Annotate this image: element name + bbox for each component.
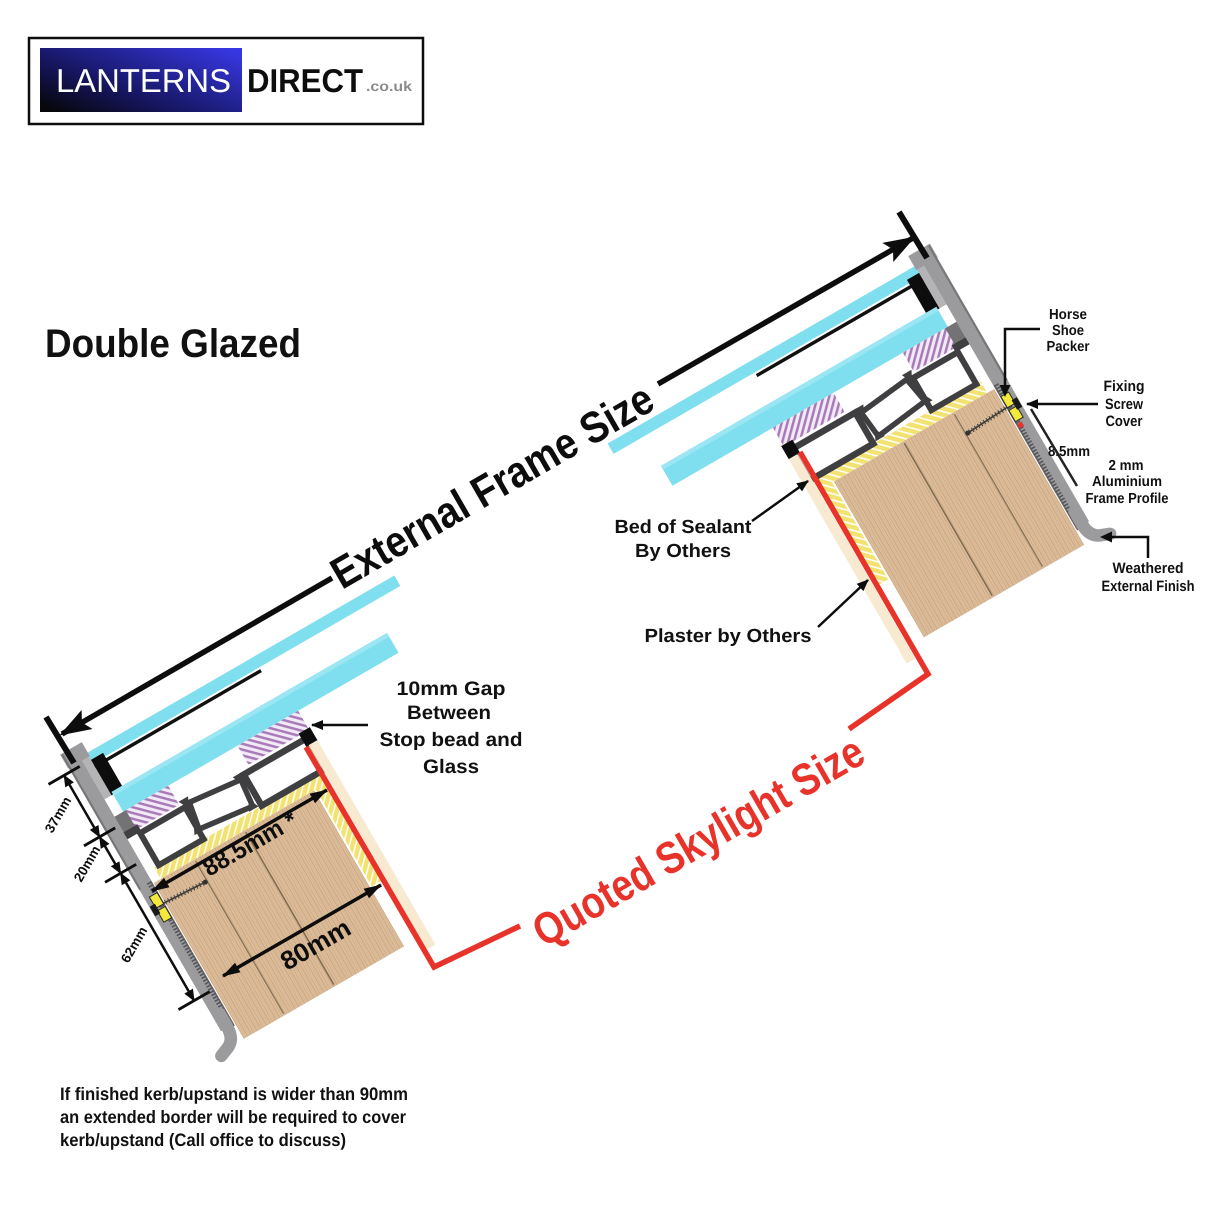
svg-text:10mm Gap: 10mm Gap [397, 678, 506, 700]
svg-text:Between: Between [407, 702, 491, 724]
svg-text:Fixing: Fixing [1104, 378, 1145, 395]
svg-text:Plaster by Others: Plaster by Others [645, 626, 812, 647]
svg-text:DIRECT: DIRECT [247, 62, 363, 99]
svg-text:Glass: Glass [423, 756, 479, 778]
svg-text:By Others: By Others [635, 541, 731, 562]
svg-text:2 mm: 2 mm [1109, 458, 1144, 474]
svg-text:.co.uk: .co.uk [366, 78, 412, 94]
svg-text:Horse: Horse [1049, 307, 1087, 323]
svg-text:kerb/upstand (Call office to d: kerb/upstand (Call office to discuss) [60, 1130, 346, 1150]
svg-text:LANTERNS: LANTERNS [56, 62, 231, 99]
svg-text:Bed of Sealant: Bed of Sealant [615, 517, 753, 538]
svg-text:an extended border will be req: an extended border will be required to c… [60, 1107, 406, 1127]
svg-text:Frame Profile: Frame Profile [1086, 491, 1169, 507]
svg-text:Weathered: Weathered [1113, 560, 1184, 577]
svg-text:Cover: Cover [1106, 413, 1143, 430]
svg-text:Packer: Packer [1047, 339, 1090, 355]
svg-text:Shoe: Shoe [1052, 323, 1084, 339]
svg-text:If finished kerb/upstand is wi: If finished kerb/upstand is wider than 9… [60, 1084, 408, 1104]
svg-text:Screw: Screw [1105, 396, 1143, 413]
svg-text:External Finish: External Finish [1102, 578, 1195, 595]
svg-text:Double Glazed: Double Glazed [45, 322, 301, 366]
svg-text:Stop bead and: Stop bead and [380, 729, 523, 751]
svg-text:Aluminium: Aluminium [1092, 474, 1162, 490]
